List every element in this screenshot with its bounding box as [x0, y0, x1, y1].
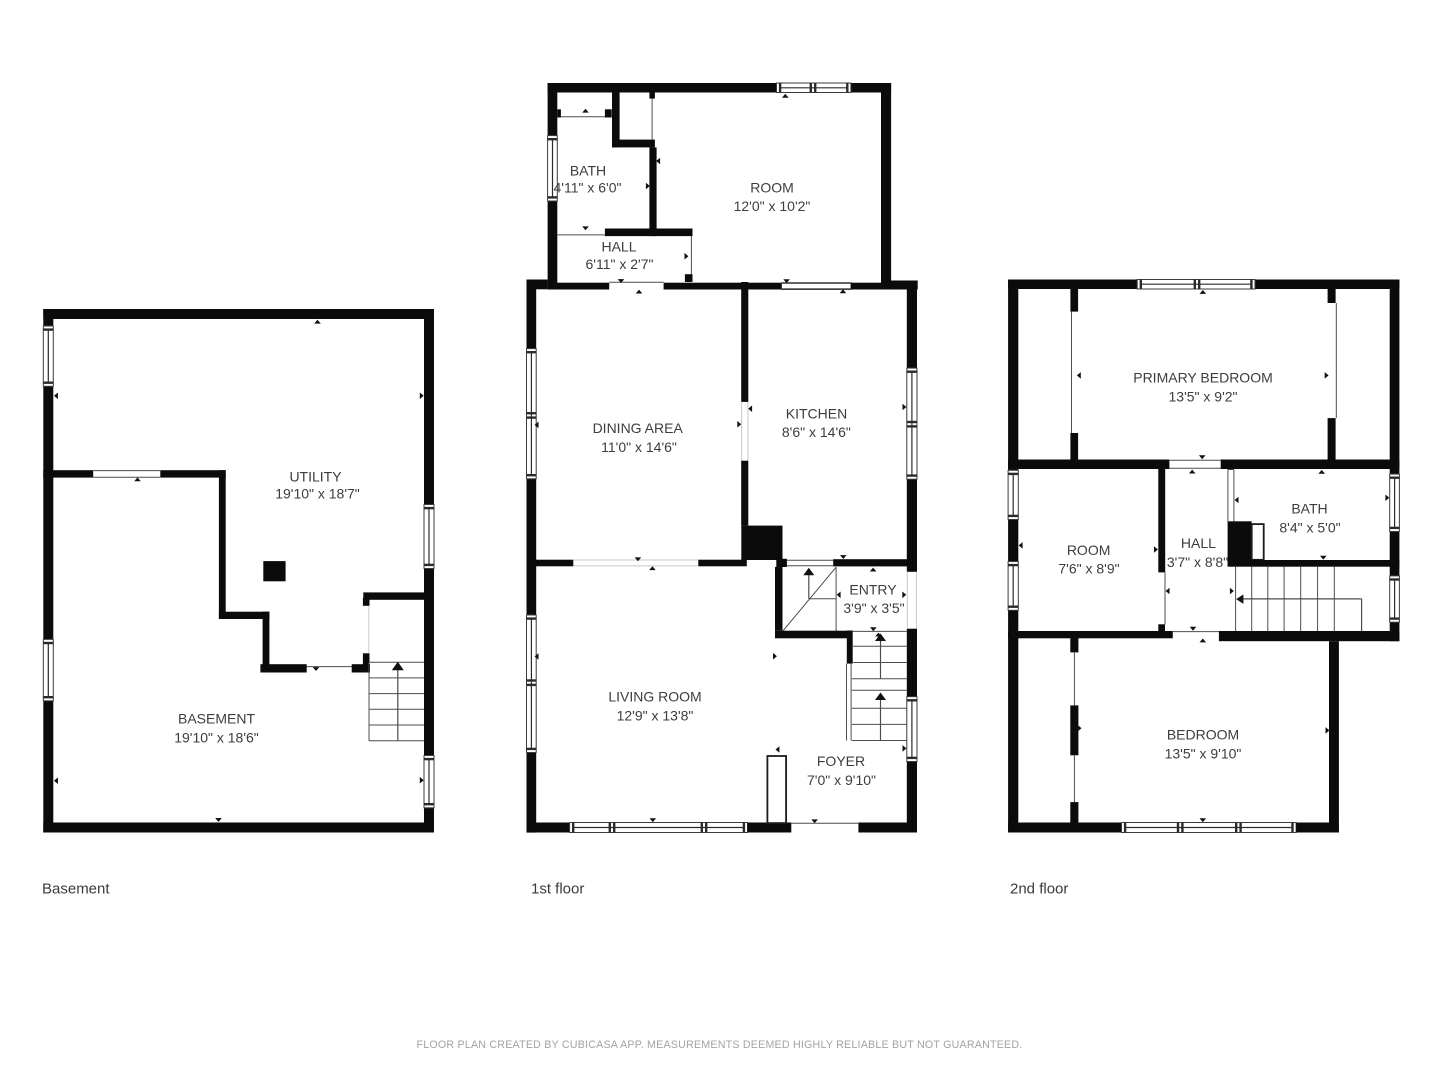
- svg-text:BASEMENT: BASEMENT: [178, 711, 255, 727]
- svg-text:19'10" x 18'6": 19'10" x 18'6": [174, 729, 259, 745]
- svg-text:KITCHEN: KITCHEN: [786, 406, 847, 422]
- svg-text:7'6" x 8'9": 7'6" x 8'9": [1058, 561, 1119, 577]
- svg-text:11'0" x 14'6": 11'0" x 14'6": [601, 439, 677, 455]
- svg-text:HALL: HALL: [1181, 535, 1216, 551]
- svg-text:12'0" x 10'2": 12'0" x 10'2": [734, 198, 811, 214]
- svg-text:1st floor: 1st floor: [531, 881, 584, 898]
- svg-text:6'11" x 2'7": 6'11" x 2'7": [586, 256, 654, 272]
- svg-text:ROOM: ROOM: [1067, 542, 1111, 558]
- svg-text:13'5" x 9'2": 13'5" x 9'2": [1169, 389, 1238, 405]
- svg-text:UTILITY: UTILITY: [289, 469, 342, 485]
- svg-text:PRIMARY BEDROOM: PRIMARY BEDROOM: [1133, 370, 1273, 386]
- svg-text:BATH: BATH: [570, 163, 606, 179]
- svg-text:13'5" x 9'10": 13'5" x 9'10": [1165, 746, 1242, 762]
- svg-text:BEDROOM: BEDROOM: [1167, 727, 1239, 743]
- svg-text:19'10" x 18'7": 19'10" x 18'7": [275, 485, 360, 501]
- svg-text:FOYER: FOYER: [817, 753, 865, 769]
- svg-text:3'7" x 8'8": 3'7" x 8'8": [1167, 554, 1228, 570]
- svg-text:FLOOR PLAN CREATED BY CUBICASA: FLOOR PLAN CREATED BY CUBICASA APP. MEAS…: [417, 1039, 1023, 1051]
- svg-text:LIVING ROOM: LIVING ROOM: [608, 689, 701, 705]
- svg-text:Basement: Basement: [42, 881, 110, 898]
- svg-text:ROOM: ROOM: [750, 179, 794, 195]
- svg-text:3'9" x 3'5": 3'9" x 3'5": [843, 600, 904, 616]
- svg-text:7'0" x 9'10": 7'0" x 9'10": [807, 772, 876, 788]
- svg-text:DINING AREA: DINING AREA: [593, 420, 684, 436]
- svg-text:12'9" x 13'8": 12'9" x 13'8": [617, 707, 694, 723]
- svg-text:2nd floor: 2nd floor: [1010, 881, 1068, 898]
- svg-text:ENTRY: ENTRY: [849, 582, 897, 598]
- svg-text:HALL: HALL: [601, 238, 636, 254]
- svg-text:4'11" x 6'0": 4'11" x 6'0": [554, 180, 622, 196]
- svg-text:BATH: BATH: [1291, 501, 1327, 517]
- svg-text:8'6" x 14'6": 8'6" x 14'6": [782, 424, 851, 440]
- svg-text:8'4" x 5'0": 8'4" x 5'0": [1279, 520, 1340, 536]
